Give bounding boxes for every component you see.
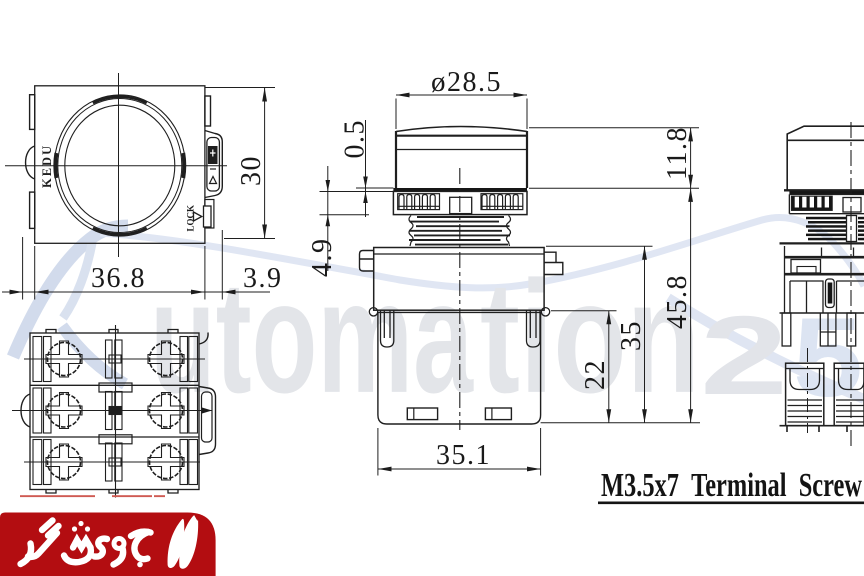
svg-text:11.8: 11.8 [662,126,693,180]
svg-text:45.8: 45.8 [662,274,693,329]
svg-text:2: 2 [700,293,788,418]
svg-text:22: 22 [580,359,611,390]
svg-text:LOCK: LOCK [186,205,196,232]
svg-text:3.9: 3.9 [243,263,283,294]
svg-text:ø28.5: ø28.5 [431,66,502,98]
svg-text:KEDU: KEDU [40,144,54,188]
svg-text:4.9: 4.9 [307,238,338,278]
svg-text:0.5: 0.5 [340,119,371,159]
svg-text:36.8: 36.8 [91,263,146,294]
svg-text:35: 35 [616,320,647,351]
svg-text:35.1: 35.1 [436,440,491,471]
svg-text:30: 30 [236,155,267,186]
svg-text:M3.5x7 Terminal Screw: M3.5x7 Terminal Screw [601,467,862,504]
